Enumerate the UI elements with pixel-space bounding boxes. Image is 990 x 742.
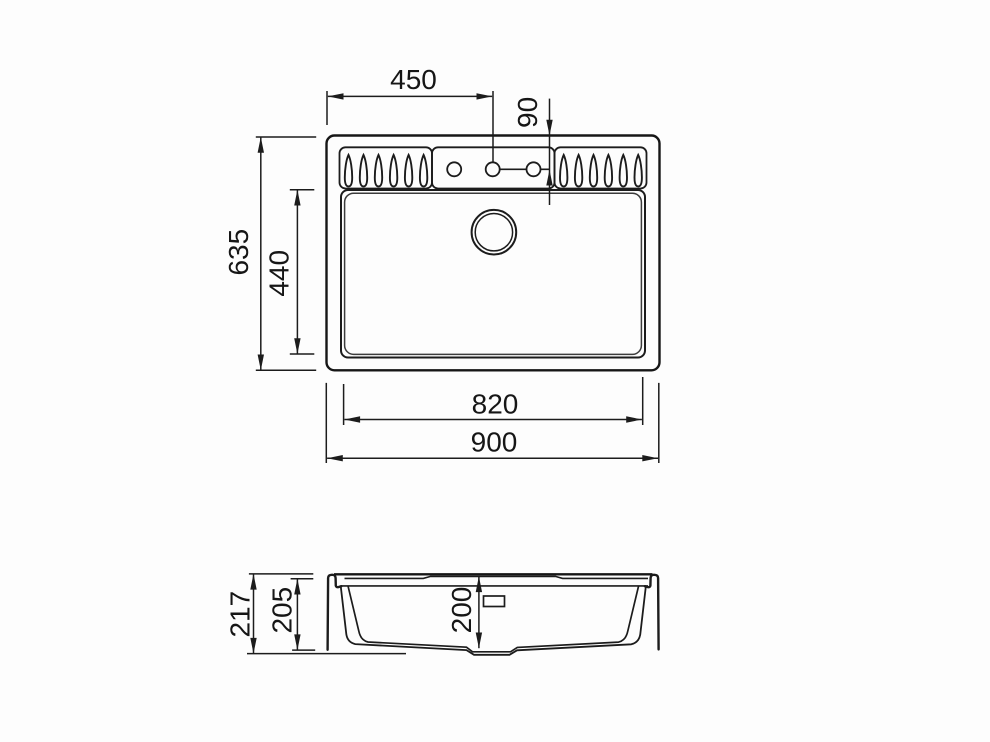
- svg-text:450: 450: [390, 64, 437, 95]
- svg-text:635: 635: [223, 229, 254, 276]
- svg-text:200: 200: [446, 587, 477, 634]
- svg-text:820: 820: [472, 389, 519, 420]
- svg-text:90: 90: [512, 97, 543, 128]
- svg-text:205: 205: [267, 587, 298, 634]
- svg-text:900: 900: [471, 427, 518, 458]
- svg-text:440: 440: [264, 250, 295, 297]
- svg-text:217: 217: [225, 591, 256, 638]
